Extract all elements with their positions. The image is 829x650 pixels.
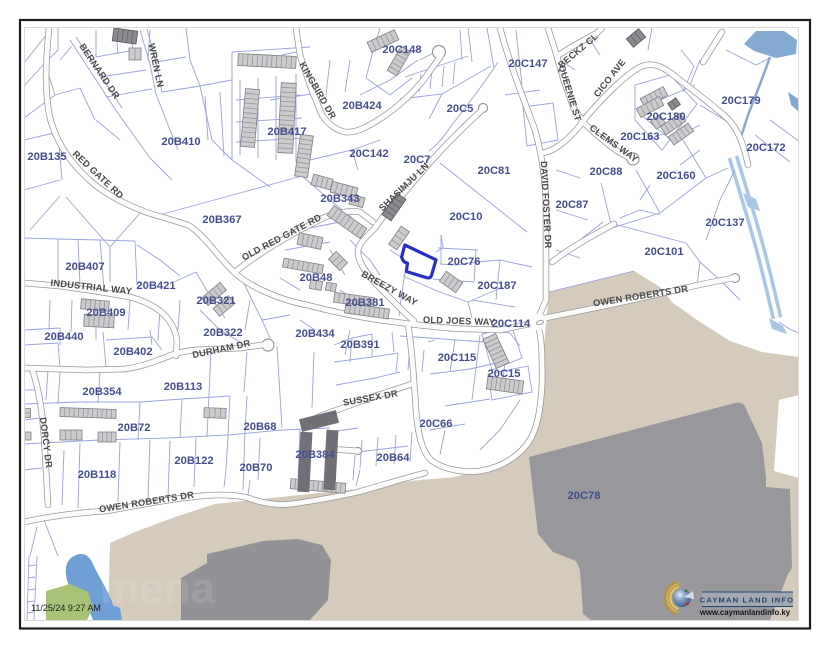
svg-text:20C15: 20C15 bbox=[488, 368, 521, 380]
svg-text:mena: mena bbox=[100, 564, 215, 613]
svg-text:20C87: 20C87 bbox=[556, 199, 589, 211]
svg-text:20B122: 20B122 bbox=[174, 455, 213, 467]
svg-text:www.caymanlandinfo.ky: www.caymanlandinfo.ky bbox=[699, 608, 791, 617]
svg-text:20B424: 20B424 bbox=[342, 100, 382, 112]
svg-text:20C66: 20C66 bbox=[420, 418, 453, 430]
svg-text:20C147: 20C147 bbox=[508, 58, 547, 70]
svg-text:20C88: 20C88 bbox=[590, 166, 623, 178]
svg-text:20B343: 20B343 bbox=[320, 193, 359, 205]
svg-text:11/25/24 9:27 AM: 11/25/24 9:27 AM bbox=[31, 603, 101, 613]
svg-text:20B354: 20B354 bbox=[82, 386, 122, 398]
svg-text:20B322: 20B322 bbox=[203, 327, 242, 339]
svg-text:20C5: 20C5 bbox=[447, 103, 474, 115]
svg-text:20B410: 20B410 bbox=[161, 136, 200, 148]
svg-text:20B391: 20B391 bbox=[340, 339, 379, 351]
svg-text:20C115: 20C115 bbox=[438, 352, 477, 364]
svg-text:20B68: 20B68 bbox=[244, 421, 277, 433]
svg-text:20B64: 20B64 bbox=[377, 452, 411, 464]
svg-text:20B402: 20B402 bbox=[113, 346, 152, 358]
svg-text:20C10: 20C10 bbox=[450, 211, 483, 223]
svg-text:20B409: 20B409 bbox=[86, 307, 125, 319]
svg-text:20B113: 20B113 bbox=[164, 381, 203, 393]
svg-text:20B135: 20B135 bbox=[27, 151, 66, 163]
svg-text:CAYMAN LAND INFO: CAYMAN LAND INFO bbox=[700, 596, 794, 605]
svg-text:20C101: 20C101 bbox=[644, 246, 683, 258]
svg-text:20C160: 20C160 bbox=[656, 170, 695, 182]
svg-text:20B407: 20B407 bbox=[65, 261, 104, 273]
svg-text:20C187: 20C187 bbox=[477, 280, 516, 292]
svg-text:20B417: 20B417 bbox=[267, 126, 306, 138]
svg-text:20B381: 20B381 bbox=[345, 297, 384, 309]
svg-text:20B70: 20B70 bbox=[240, 462, 273, 474]
svg-text:20C81: 20C81 bbox=[478, 165, 511, 177]
svg-text:20B118: 20B118 bbox=[78, 469, 117, 481]
svg-text:20C163: 20C163 bbox=[620, 131, 659, 143]
svg-text:20C114: 20C114 bbox=[492, 318, 531, 330]
svg-text:20B367: 20B367 bbox=[202, 214, 241, 226]
svg-text:20B72: 20B72 bbox=[118, 422, 151, 434]
svg-text:20B440: 20B440 bbox=[44, 331, 83, 343]
svg-text:20C148: 20C148 bbox=[382, 44, 421, 56]
svg-text:20B321: 20B321 bbox=[196, 295, 235, 307]
svg-text:20C76: 20C76 bbox=[448, 256, 481, 268]
svg-text:20C172: 20C172 bbox=[746, 142, 785, 154]
svg-text:20C137: 20C137 bbox=[705, 217, 744, 229]
svg-text:20C179: 20C179 bbox=[721, 95, 760, 107]
svg-text:20B48: 20B48 bbox=[300, 272, 333, 284]
svg-text:20C180: 20C180 bbox=[646, 111, 685, 123]
svg-text:20B384: 20B384 bbox=[295, 449, 335, 461]
svg-text:20C142: 20C142 bbox=[349, 148, 388, 160]
svg-text:20B421: 20B421 bbox=[136, 280, 175, 292]
svg-text:20C78: 20C78 bbox=[568, 490, 601, 502]
svg-text:20B434: 20B434 bbox=[295, 328, 335, 340]
